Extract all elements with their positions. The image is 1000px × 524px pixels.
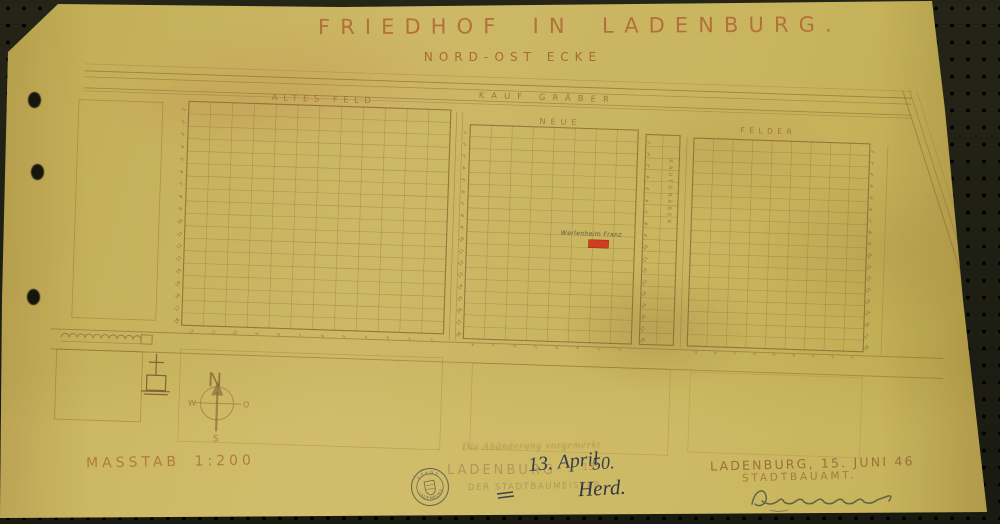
grave-grid-neue: 12345678910111213141516171887654321 [454, 124, 638, 352]
strip-vertical-label: KAUFGRÄBER [665, 159, 674, 226]
svg-text:7: 7 [460, 201, 466, 207]
svg-text:11: 11 [457, 247, 465, 255]
compass-rose: N W O S [187, 368, 251, 445]
svg-text:2: 2 [646, 151, 652, 157]
field-label-felder: FELDER [740, 126, 796, 137]
field-label-kauf-graeber: KAUF GRÄBER [479, 90, 616, 106]
svg-text:10: 10 [176, 217, 184, 225]
svg-text:13: 13 [175, 255, 183, 263]
svg-text:5: 5 [179, 156, 185, 162]
svg-text:8: 8 [867, 230, 873, 236]
svg-text:8: 8 [643, 221, 649, 227]
east-wall-band [895, 91, 1000, 338]
svg-text:6: 6 [868, 206, 874, 212]
svg-text:18: 18 [173, 317, 181, 325]
svg-text:7: 7 [179, 181, 185, 187]
svg-text:4: 4 [869, 183, 875, 189]
svg-text:15: 15 [174, 280, 182, 288]
svg-text:14: 14 [456, 283, 464, 291]
svg-text:9: 9 [459, 224, 465, 230]
red-plot-marker [588, 240, 608, 249]
svg-text:15: 15 [456, 295, 464, 303]
svg-text:8: 8 [460, 213, 466, 219]
svg-text:9: 9 [178, 206, 184, 212]
svg-text:2: 2 [870, 160, 876, 166]
stamp-shield [424, 480, 436, 496]
red-plot-annotation: Werlenheim Franz [561, 230, 623, 239]
cross-monument [141, 354, 170, 395]
svg-text:10: 10 [458, 235, 466, 243]
svg-text:6: 6 [644, 198, 650, 204]
svg-text:12: 12 [457, 259, 465, 267]
svg-text:16: 16 [174, 292, 182, 300]
svg-text:4: 4 [645, 174, 651, 180]
svg-text:4: 4 [180, 144, 186, 150]
plan-sheet: FRIEDHOF IN LADENBURG. NORD-OST ECKE [0, 0, 1000, 524]
city-stamp: STADT LADENBURG [409, 466, 452, 509]
svg-text:5: 5 [645, 186, 651, 192]
grave-grid-felder: 123456789101112131415161718987654321 [687, 138, 878, 361]
south-blocks [54, 345, 863, 464]
approval-year: 50. [591, 452, 615, 475]
scale-label: MASSTAB 1:200 [86, 453, 255, 472]
svg-text:7: 7 [868, 218, 874, 224]
svg-text:16: 16 [455, 307, 463, 315]
svg-text:9: 9 [867, 241, 873, 247]
compass-east-label: O [243, 400, 250, 409]
svg-text:11: 11 [176, 230, 184, 238]
svg-text:1: 1 [181, 106, 187, 112]
compass-west-label: W [188, 398, 196, 407]
svg-text:5: 5 [461, 177, 467, 183]
grave-grid-altes-feld: 1234567891011121314151617181211109876543… [173, 101, 451, 343]
svg-text:3: 3 [645, 163, 651, 169]
svg-text:2: 2 [181, 119, 187, 125]
west-empty-field [72, 100, 163, 321]
svg-text:8: 8 [178, 194, 184, 200]
stamp-text-top: STADT [415, 469, 440, 483]
svg-text:17: 17 [173, 305, 181, 313]
svg-text:3: 3 [869, 172, 875, 178]
svg-text:STADT: STADT [415, 469, 440, 483]
svg-text:6: 6 [460, 189, 466, 195]
svg-text:3: 3 [180, 131, 186, 137]
svg-text:7: 7 [644, 209, 650, 215]
svg-text:1: 1 [870, 149, 876, 155]
right-signature [752, 491, 891, 512]
svg-text:4: 4 [461, 165, 467, 171]
underline-mark [497, 492, 514, 498]
main-path-band [51, 329, 943, 379]
svg-text:13: 13 [457, 271, 465, 279]
approval-signature: Herd. [577, 475, 626, 502]
svg-text:2: 2 [462, 141, 468, 147]
svg-text:17: 17 [455, 319, 463, 327]
svg-text:12: 12 [175, 242, 183, 250]
svg-text:1: 1 [462, 129, 468, 135]
svg-text:9: 9 [643, 233, 649, 239]
compass-south-label: S [213, 434, 219, 444]
field-label-neue: NEUE [539, 117, 581, 127]
svg-text:18: 18 [455, 330, 463, 338]
svg-text:3: 3 [462, 153, 468, 159]
svg-text:5: 5 [868, 195, 874, 201]
hedge-row [61, 332, 152, 344]
svg-text:14: 14 [175, 267, 183, 275]
svg-text:1: 1 [646, 139, 652, 145]
svg-text:6: 6 [179, 169, 185, 175]
